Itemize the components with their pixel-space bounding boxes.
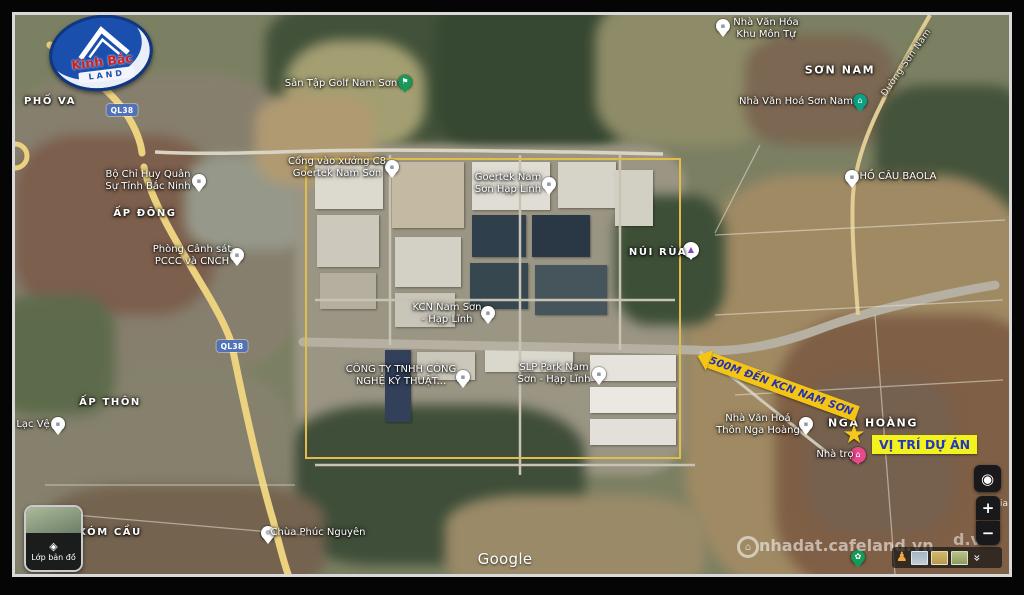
fire-station-icon[interactable]: ▪ bbox=[230, 248, 244, 262]
watermark-magnifier-icon: ⌂ bbox=[737, 536, 759, 558]
poi-label-goertek: Goertek NamSơn Hạp Lĩnh bbox=[475, 172, 542, 196]
imagery-thumbnail[interactable] bbox=[931, 551, 948, 565]
zoom-out-button[interactable]: − bbox=[976, 521, 1000, 545]
poi-label-nvh-son-nam: Nhà Văn Hoá Sơn Nam bbox=[739, 96, 853, 108]
map-frame: PHỐ VA SƠN NAM ẤP ĐÔNG ẤP THÔN XÓM CẦU N… bbox=[12, 12, 1012, 577]
kinh-bac-land-logo: Kinh Bắc LAND bbox=[45, 15, 157, 97]
poi-label-nha-tro: Nhà trọ bbox=[816, 449, 853, 461]
watermark-fragment-small: ia bbox=[1000, 499, 1008, 509]
imagery-thumbnail[interactable] bbox=[911, 551, 928, 565]
place-label-son-nam: SƠN NAM bbox=[805, 63, 875, 76]
layers-thumbnail bbox=[26, 507, 81, 533]
route-shield-ql38: QL38 bbox=[217, 340, 248, 352]
poi-label-nvh-nga-hoang: Nhà Văn HoáThôn Nga Hoàng bbox=[716, 413, 800, 437]
poi-label-ho-cau-baola: HỒ CÂU BAOLA bbox=[860, 171, 937, 183]
my-location-icon: ◉ bbox=[981, 470, 994, 488]
poi-label-nui-rua: NÚI RÙA bbox=[629, 247, 687, 259]
poi-label-bo-chi-huy: Bộ Chỉ Huy QuânSự Tỉnh Bắc Ninh bbox=[105, 169, 190, 193]
place-label-pho-va: PHỐ VA bbox=[24, 96, 76, 108]
company-icon[interactable]: ▪ bbox=[456, 370, 470, 384]
place-label-ap-thon: ẤP THÔN bbox=[79, 397, 141, 409]
poi-label-cong-ty-tnhh: CÔNG TY TNHH CÔNGNGHỆ KỸ THUẬT... bbox=[346, 364, 457, 388]
building-icon[interactable]: ▪ bbox=[192, 174, 206, 188]
factory-icon[interactable]: ▪ bbox=[542, 177, 556, 191]
imagery-thumbnail[interactable] bbox=[951, 551, 968, 565]
poi-label-lac-ve: Lạc Vệ bbox=[16, 419, 49, 431]
poi-label-khu-mon-tu: Nhà Văn HóaKhu Môn Tự bbox=[733, 17, 798, 41]
warehouse-icon[interactable]: ▪ bbox=[592, 367, 606, 381]
golf-flag-icon[interactable]: ⚑ bbox=[398, 75, 412, 89]
poi-label-kcn-nam-son: KCN Nam Sơn- Hạp Lĩnh bbox=[413, 302, 482, 326]
layers-label: Lớp bản đồ bbox=[31, 553, 76, 562]
my-location-button[interactable]: ◉ bbox=[974, 465, 1001, 492]
community-house-icon[interactable]: ⌂ bbox=[853, 94, 867, 108]
poi-label-san-tap-golf: Sân Tập Golf Nam Sơn bbox=[285, 78, 397, 90]
industrial-zone-icon[interactable]: ▪ bbox=[481, 306, 495, 320]
pegman-icon[interactable]: ♟ bbox=[896, 551, 908, 564]
place-icon[interactable]: ▪ bbox=[51, 417, 65, 431]
poi-label-chua-phuc-nguyen: Chùa Phúc Nguyên bbox=[271, 527, 366, 539]
project-location-label: VỊ TRÍ DỰ ÁN bbox=[872, 435, 977, 454]
route-shield-ql38: QL38 bbox=[107, 104, 138, 116]
place-label-xom-cau: XÓM CẦU bbox=[78, 527, 142, 539]
zoom-in-button[interactable]: + bbox=[976, 496, 1000, 520]
poi-label-cong-vao-xuong-c8: Cổng vào xưởng C8Goertek Nam Sơn bbox=[288, 156, 386, 180]
layers-icon: ◈ bbox=[49, 541, 57, 552]
collapse-chevron-icon[interactable]: « bbox=[969, 554, 983, 561]
screenshot-root: PHỐ VA SƠN NAM ẤP ĐÔNG ẤP THÔN XÓM CẦU N… bbox=[0, 0, 1024, 595]
google-logo: Google bbox=[478, 550, 533, 568]
project-star-icon: ★ bbox=[842, 422, 865, 448]
logo-oval: Kinh Bắc LAND bbox=[45, 15, 157, 97]
building-icon[interactable]: ▪ bbox=[716, 19, 730, 33]
imagery-bar: ♟ « bbox=[892, 547, 1002, 568]
map-layers-button[interactable]: ◈ Lớp bản đồ bbox=[24, 505, 83, 572]
poi-label-phong-canh-sat: Phòng Cảnh sátPCCC và CNCH bbox=[153, 244, 232, 268]
place-label-ap-dong: ẤP ĐÔNG bbox=[113, 208, 176, 220]
satellite-map-canvas[interactable]: PHỐ VA SƠN NAM ẤP ĐÔNG ẤP THÔN XÓM CẦU N… bbox=[15, 15, 1009, 574]
community-house-icon[interactable]: ▪ bbox=[799, 417, 813, 431]
poi-label-slp-park: SLP Park NamSơn - Hạp Lĩnh bbox=[518, 362, 591, 386]
fishing-lake-icon[interactable]: ▪ bbox=[845, 170, 859, 184]
factory-gate-icon[interactable]: ▪ bbox=[385, 160, 399, 174]
